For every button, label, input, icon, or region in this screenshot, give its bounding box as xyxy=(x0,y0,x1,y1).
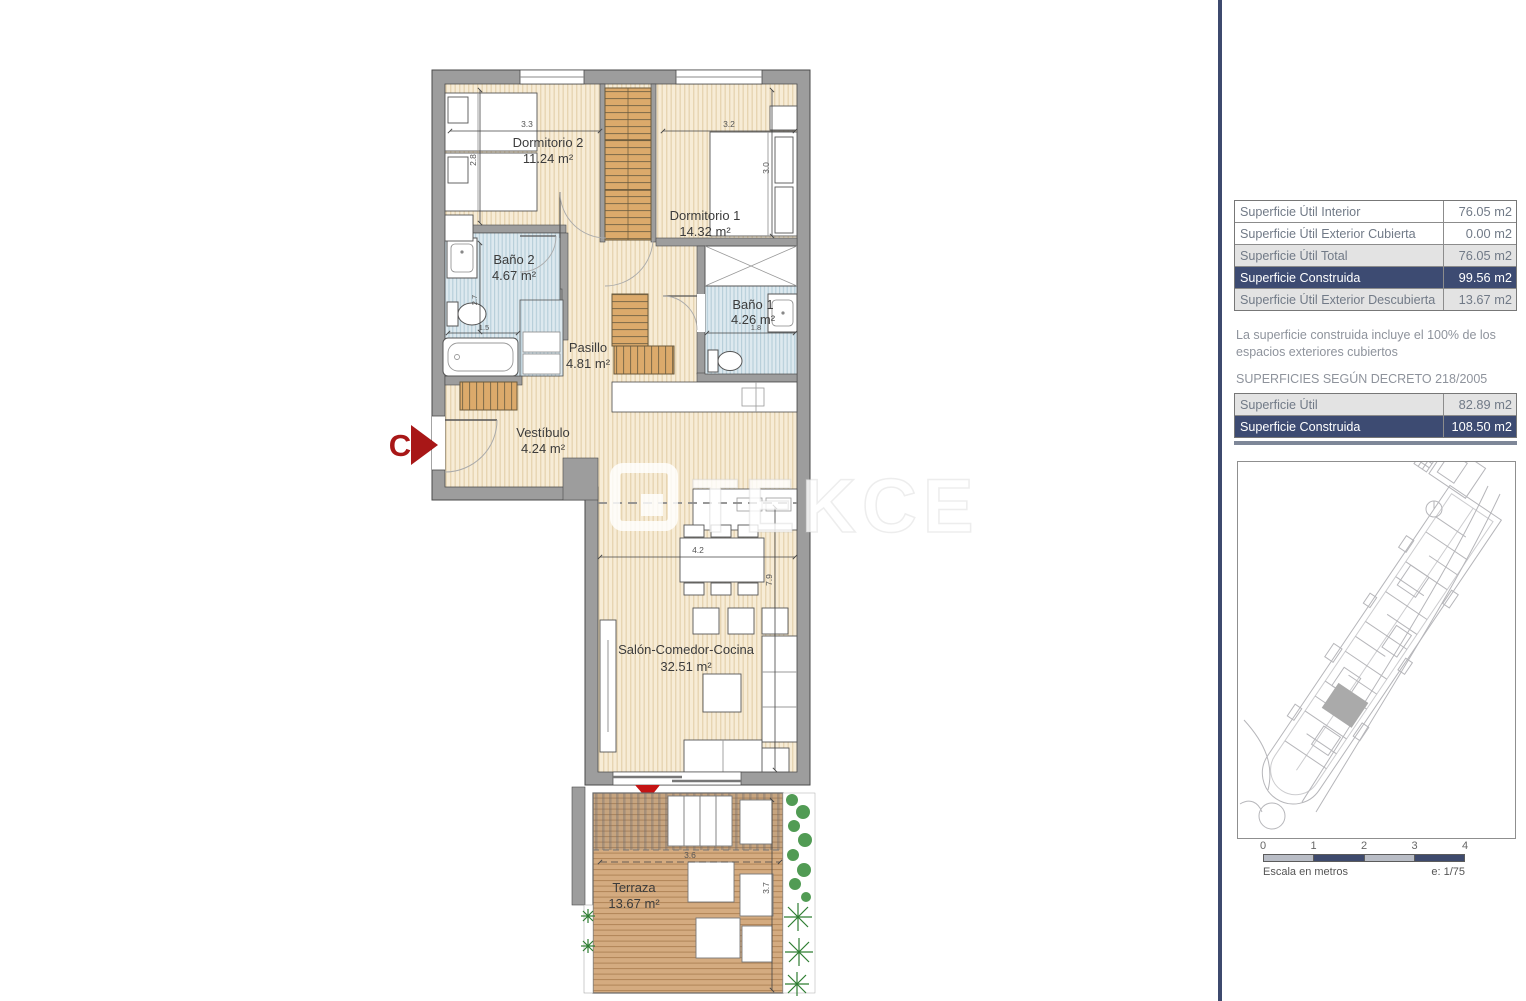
bath2-toilet-tank xyxy=(447,302,458,326)
room-area-bano-1: 4.26 m² xyxy=(731,312,776,327)
bath1-toilet-bowl xyxy=(718,352,742,371)
entrance-letter: C xyxy=(389,428,411,463)
room-label-pasillo: Pasillo xyxy=(569,340,607,355)
wardrobe-pasillo-v xyxy=(612,294,648,346)
terrace-chair xyxy=(688,862,734,902)
room-area-salon: 32.51 m² xyxy=(660,659,712,674)
room-label-bano-2: Baño 2 xyxy=(493,252,534,267)
dim-label-terraza-width: 3.6 xyxy=(684,850,696,860)
dim-label-bano2-height: 2.7 xyxy=(470,295,479,305)
room-area-vestibulo: 4.24 m² xyxy=(521,441,566,456)
terrace-sliding-door xyxy=(613,772,741,785)
dim-label-terraza-height: 3.7 xyxy=(761,882,771,894)
room-label-terraza: Terraza xyxy=(612,880,656,895)
stool xyxy=(728,608,754,634)
nightstand xyxy=(770,106,797,130)
dim-label-salon-height: 7.9 xyxy=(764,574,774,586)
armchair xyxy=(759,748,789,772)
watermark-text: TEKCE xyxy=(692,464,980,549)
dim-label-dorm1-height: 3.0 xyxy=(761,162,771,174)
terrace-chair xyxy=(696,918,740,958)
sofa xyxy=(762,636,797,742)
stool xyxy=(693,608,719,634)
floorplan-page: 3.3 2.8 3.2 3.0 2.7 1.5 1.8 4.2 7.9 3.6 … xyxy=(0,0,1526,1001)
room-area-bano-2: 4.67 m² xyxy=(492,268,537,283)
room-label-vestibulo: Vestíbulo xyxy=(516,425,570,440)
terrace-chair xyxy=(742,926,772,962)
room-label-bano-1: Baño 1 xyxy=(732,297,773,312)
room-area-dormitorio-1: 14.32 m² xyxy=(679,224,731,239)
dim-label-bano2-width: 1.5 xyxy=(479,323,489,332)
room-area-dormitorio-2: 11.24 m² xyxy=(523,151,574,166)
entrance-marker: C xyxy=(389,425,438,465)
nightstand xyxy=(445,215,473,241)
bath1-toilet-tank xyxy=(708,350,718,372)
panel-divider-line xyxy=(1218,0,1222,1001)
terrace-chair xyxy=(740,874,773,916)
coffee-table xyxy=(703,674,741,712)
bath2-toilet-bowl xyxy=(458,303,486,325)
room-label-salon: Salón-Comedor-Cocina xyxy=(618,642,755,657)
room-area-pasillo: 4.81 m² xyxy=(566,356,611,371)
dim-label-dorm2-height: 2.8 xyxy=(468,154,478,166)
floor-plan: 3.3 2.8 3.2 3.0 2.7 1.5 1.8 4.2 7.9 3.6 … xyxy=(0,0,1526,1001)
room-label-dormitorio-1: Dormitorio 1 xyxy=(670,208,741,223)
room-label-dormitorio-2: Dormitorio 2 xyxy=(513,135,584,150)
dim-label-dorm2-width: 3.3 xyxy=(521,119,533,129)
kitchen-counter xyxy=(612,382,797,412)
terrace-chair xyxy=(740,800,772,844)
wardrobe-vestibulo xyxy=(460,382,517,410)
wardrobe-pasillo-h xyxy=(614,346,674,374)
dim-label-dorm1-width: 3.2 xyxy=(723,119,735,129)
room-area-terraza: 13.67 m² xyxy=(608,896,660,911)
